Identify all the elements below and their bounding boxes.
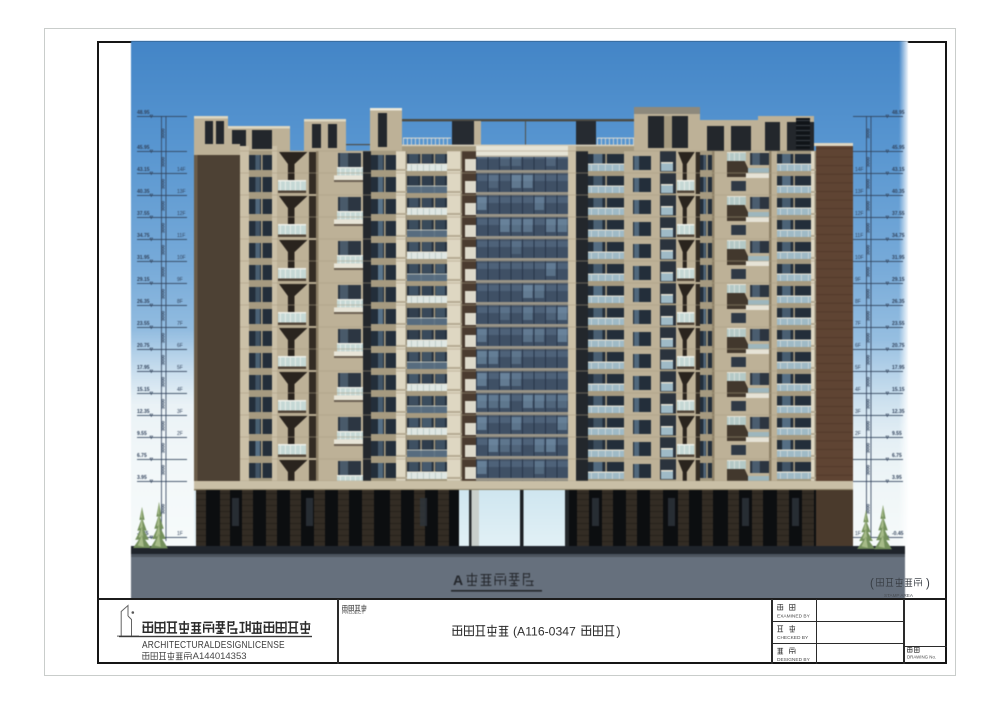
svg-text:2F: 2F — [855, 431, 861, 437]
svg-text:13F: 13F — [855, 189, 864, 195]
svg-text:3000: 3000 — [866, 442, 871, 453]
svg-text:14F: 14F — [855, 167, 864, 173]
svg-text:8F: 8F — [855, 299, 861, 305]
svg-text:43.15: 43.15 — [892, 167, 905, 173]
svg-text:3000: 3000 — [161, 310, 166, 321]
svg-text:3000: 3000 — [161, 288, 166, 299]
svg-text:3000: 3000 — [161, 222, 166, 233]
svg-text:3.95: 3.95 — [892, 475, 902, 481]
svg-text:EXAMINED BY: EXAMINED BY — [777, 613, 811, 619]
svg-text:9.55: 9.55 — [137, 431, 147, 437]
svg-text:3000: 3000 — [866, 398, 871, 409]
svg-text:STAMP AREA: STAMP AREA — [884, 593, 914, 598]
svg-text:3000: 3000 — [161, 178, 166, 189]
svg-text:5F: 5F — [177, 365, 183, 371]
svg-text:23.55: 23.55 — [892, 321, 905, 327]
svg-text:A: A — [453, 572, 463, 588]
svg-text:26.35: 26.35 — [892, 299, 905, 305]
svg-text:34.75: 34.75 — [892, 233, 905, 239]
svg-text:17.95: 17.95 — [137, 365, 150, 371]
svg-text:3000: 3000 — [161, 266, 166, 277]
svg-text:3000: 3000 — [161, 354, 166, 365]
svg-text:37.55: 37.55 — [892, 211, 905, 217]
svg-text:6F: 6F — [177, 343, 183, 349]
svg-text:31.95: 31.95 — [892, 255, 905, 261]
svg-text:3000: 3000 — [866, 244, 871, 255]
svg-text:3F: 3F — [855, 409, 861, 415]
svg-text:3000: 3000 — [161, 244, 166, 255]
svg-text:20.75: 20.75 — [892, 343, 905, 349]
svg-text:26.35: 26.35 — [137, 299, 150, 305]
svg-text:48.95: 48.95 — [892, 110, 905, 116]
svg-text:48.95: 48.95 — [137, 110, 150, 116]
svg-text:45.95: 45.95 — [137, 145, 150, 151]
svg-text:8F: 8F — [177, 299, 183, 305]
svg-text:3000: 3000 — [866, 420, 871, 431]
svg-text:40.35: 40.35 — [137, 189, 150, 195]
svg-text:9F: 9F — [855, 277, 861, 283]
svg-text:3000: 3000 — [161, 464, 166, 475]
svg-text:4F: 4F — [177, 387, 183, 393]
svg-text:(: ( — [870, 578, 874, 590]
svg-text:3000: 3000 — [866, 266, 871, 277]
svg-text:12.35: 12.35 — [137, 409, 150, 415]
svg-text:12.35: 12.35 — [892, 409, 905, 415]
svg-text:(A116-0347: (A116-0347 — [513, 625, 576, 639]
svg-text:4F: 4F — [855, 387, 861, 393]
svg-text:13F: 13F — [177, 189, 186, 195]
svg-text:43.15: 43.15 — [137, 167, 150, 173]
svg-text:3000: 3000 — [866, 354, 871, 365]
svg-text:3000: 3000 — [161, 442, 166, 453]
svg-text:31.95: 31.95 — [137, 255, 150, 261]
svg-text:11F: 11F — [177, 233, 185, 239]
svg-text:20.75: 20.75 — [137, 343, 150, 349]
svg-text:12F: 12F — [855, 211, 864, 217]
svg-text:-0.45: -0.45 — [892, 531, 904, 537]
svg-text:3000: 3000 — [866, 200, 871, 211]
svg-text:3000: 3000 — [866, 156, 871, 167]
svg-text:3000: 3000 — [161, 332, 166, 343]
svg-text:6F: 6F — [855, 343, 861, 349]
svg-text:9.55: 9.55 — [892, 431, 902, 437]
svg-text:3000: 3000 — [866, 332, 871, 343]
svg-text:37.55: 37.55 — [137, 211, 150, 217]
svg-text:10F: 10F — [177, 255, 186, 261]
svg-text:3000: 3000 — [161, 398, 166, 409]
svg-text:15.15: 15.15 — [892, 387, 905, 393]
svg-text:3000: 3000 — [161, 376, 166, 387]
svg-text:15.15: 15.15 — [137, 387, 150, 393]
svg-text:3000: 3000 — [866, 464, 871, 475]
svg-text:3000: 3000 — [866, 178, 871, 189]
svg-text:): ) — [617, 625, 621, 639]
svg-text:6.75: 6.75 — [892, 453, 902, 459]
svg-text:29.15: 29.15 — [137, 277, 150, 283]
svg-text:7F: 7F — [855, 321, 861, 327]
svg-text:45.95: 45.95 — [892, 145, 905, 151]
svg-text:3F: 3F — [177, 409, 183, 415]
svg-text:3000: 3000 — [161, 503, 166, 514]
svg-text:10F: 10F — [855, 255, 864, 261]
svg-text:17.95: 17.95 — [892, 365, 905, 371]
svg-text:3000: 3000 — [866, 288, 871, 299]
svg-text:3000: 3000 — [866, 310, 871, 321]
svg-text:3000: 3000 — [866, 376, 871, 387]
svg-text:34.75: 34.75 — [137, 233, 150, 239]
svg-text:40.35: 40.35 — [892, 189, 905, 195]
svg-text:1F: 1F — [177, 531, 183, 537]
svg-text:6.75: 6.75 — [137, 453, 147, 459]
svg-text:CHECKED BY: CHECKED BY — [777, 635, 809, 641]
svg-text:1F: 1F — [855, 531, 861, 537]
svg-text:29.15: 29.15 — [892, 277, 905, 283]
svg-text:3000: 3000 — [161, 420, 166, 431]
svg-text:3000: 3000 — [161, 156, 166, 167]
svg-text:): ) — [926, 578, 930, 590]
svg-text:3000: 3000 — [161, 128, 166, 139]
svg-text:5F: 5F — [855, 365, 861, 371]
svg-text:DESIGNED BY: DESIGNED BY — [777, 657, 811, 663]
svg-text:3.95: 3.95 — [137, 475, 147, 481]
svg-text:3000: 3000 — [866, 222, 871, 233]
svg-text:3000: 3000 — [161, 200, 166, 211]
svg-text:11F: 11F — [855, 233, 863, 239]
svg-text:7F: 7F — [177, 321, 183, 327]
svg-text:3000: 3000 — [866, 128, 871, 139]
svg-text:DRAWING No.: DRAWING No. — [907, 655, 936, 660]
svg-text:2F: 2F — [177, 431, 183, 437]
svg-text:12F: 12F — [177, 211, 186, 217]
svg-text:23.55: 23.55 — [137, 321, 150, 327]
svg-text:9F: 9F — [177, 277, 183, 283]
svg-text:14F: 14F — [177, 167, 186, 173]
